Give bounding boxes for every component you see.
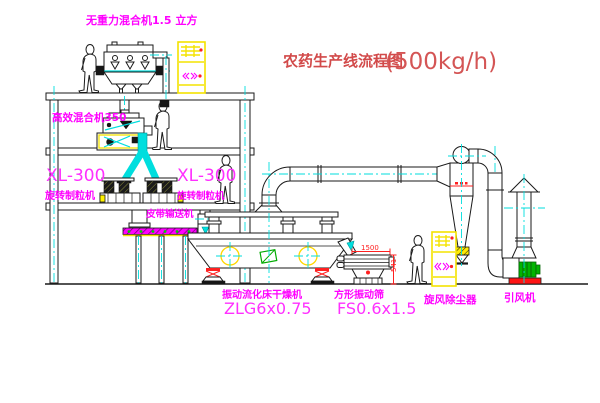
conveyor-belt [123, 228, 197, 235]
top-floor-slab [46, 93, 254, 100]
granulator-left-model: XL-300 [46, 166, 105, 186]
downcomer-duct [488, 173, 502, 250]
control-cabinet-top [178, 42, 205, 93]
control-cabinet-right [432, 232, 456, 286]
cad-flow-diagram: 1500 541 无重力混合机1.5 立方 农药生产线流程图 (500kg/h)… [0, 0, 600, 403]
duct-horizontal [290, 167, 437, 181]
mixer-lid [107, 45, 153, 52]
dryer-hood-plate [205, 212, 338, 217]
cyclone-label: 旋风除尘器 [423, 293, 477, 306]
high-efficiency-mixer-label: 高效混合机350 [52, 111, 126, 124]
cabinet-vent-louvers [181, 45, 200, 57]
junction-box [160, 100, 169, 107]
gravity-mixer-label: 无重力混合机1.5 立方 [85, 13, 197, 27]
dim-height-text: 541 [390, 259, 398, 272]
screen-model-label: FS0.6x1.5 [337, 299, 416, 318]
fan-base [509, 278, 541, 284]
screen-deck-box [344, 255, 391, 269]
induced-draft-fan [503, 258, 541, 284]
fan-housing [503, 258, 519, 278]
mixer-hopper [104, 72, 156, 84]
indicator-lamp [450, 236, 453, 239]
cabinet-body [432, 232, 456, 286]
conveyor-legs [136, 236, 188, 283]
dryer-rim [188, 233, 352, 239]
vibrating-screen: 1500 541 [337, 238, 398, 284]
belt-conveyor-label: 皮带输送机 [145, 208, 194, 220]
dimension-height: 541 [390, 255, 398, 284]
worker-figure-top-floor [79, 45, 99, 93]
dryer-hood-stubs [207, 217, 334, 233]
mixer-spray-nozzles [111, 56, 149, 70]
dimension-length: 1500 [352, 244, 390, 255]
duct-elbow [262, 167, 290, 195]
dryer-spring-support-right [311, 268, 334, 284]
cyclone-discharge-valve [455, 247, 469, 255]
diagram-capacity: (500kg/h) [385, 49, 497, 75]
granulator-left [100, 178, 140, 203]
granulator-right-name: 旋转制粒机 [176, 190, 225, 202]
dryer-spring-support-left [202, 268, 225, 284]
worker-figure-ground [407, 236, 427, 284]
middle-floor-slab [46, 148, 254, 155]
dryer-model-label: ZLG6x0.75 [224, 299, 312, 318]
dryer-bed-body [188, 239, 352, 268]
worker-figure-middle-floor [152, 102, 172, 150]
granulator-left-name: 旋转制粒机 [44, 189, 95, 202]
cabinet-vent-louvers [435, 235, 450, 247]
indicator-lamp [199, 48, 202, 51]
granulator-left-body [100, 193, 140, 203]
cyclone-inlet-reducer [437, 163, 450, 187]
diagram-canvas: 1500 541 无重力混合机1.5 立方 农药生产线流程图 (500kg/h)… [0, 0, 600, 403]
fluid-bed-dryer [188, 212, 352, 284]
shaft-bearing-left [96, 66, 104, 75]
granulator-right-model: XL-300 [177, 166, 236, 186]
gravity-free-mixer [96, 42, 172, 99]
dim-length-text: 1500 [361, 244, 379, 252]
fan-label: 引风机 [504, 291, 536, 304]
